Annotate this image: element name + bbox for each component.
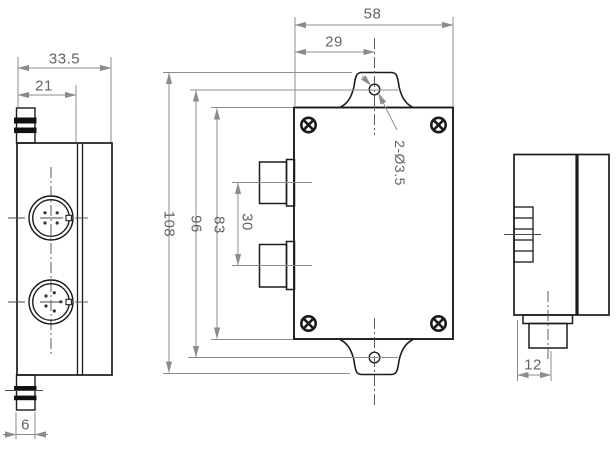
gland-band bbox=[14, 396, 37, 401]
front-view-dimensions bbox=[163, 17, 453, 374]
dim-hole-offset: 29 bbox=[325, 35, 343, 50]
dim-gland-width: 6 bbox=[21, 418, 30, 433]
gland-band bbox=[14, 128, 37, 134]
dim-overall-height: 108 bbox=[162, 211, 177, 238]
bottom-cable-gland bbox=[17, 375, 36, 410]
left-view-body bbox=[17, 143, 112, 375]
dim-connector-width: 12 bbox=[524, 358, 542, 373]
hole-callout-label: 2-Ø3.5 bbox=[393, 140, 407, 186]
front-view-enclosure bbox=[294, 108, 453, 340]
gland-band bbox=[14, 118, 37, 124]
gland-band bbox=[14, 386, 37, 391]
technical-drawing-page: 33.5 21 6 58 29 108 96 83 30 2-Ø3.5 12 bbox=[0, 0, 616, 449]
dim-overall-width: 58 bbox=[364, 7, 382, 22]
dim-body-height: 83 bbox=[212, 216, 227, 234]
left-side-view bbox=[5, 108, 112, 410]
screw-icon bbox=[431, 118, 445, 132]
screw-icon bbox=[301, 118, 315, 132]
front-view bbox=[260, 38, 574, 406]
dim-connector-spacing: 30 bbox=[240, 213, 255, 231]
dim-overall-depth: 33.5 bbox=[49, 52, 80, 67]
screw-icon bbox=[301, 316, 315, 330]
dim-body-depth: 21 bbox=[35, 79, 53, 94]
left-view-dimensions bbox=[3, 57, 111, 439]
right-view-centerlines bbox=[504, 235, 548, 363]
technical-drawing-canvas bbox=[0, 0, 616, 449]
right-side-view bbox=[504, 155, 609, 363]
dim-hole-spacing: 96 bbox=[189, 215, 204, 233]
top-cable-gland bbox=[17, 108, 36, 143]
